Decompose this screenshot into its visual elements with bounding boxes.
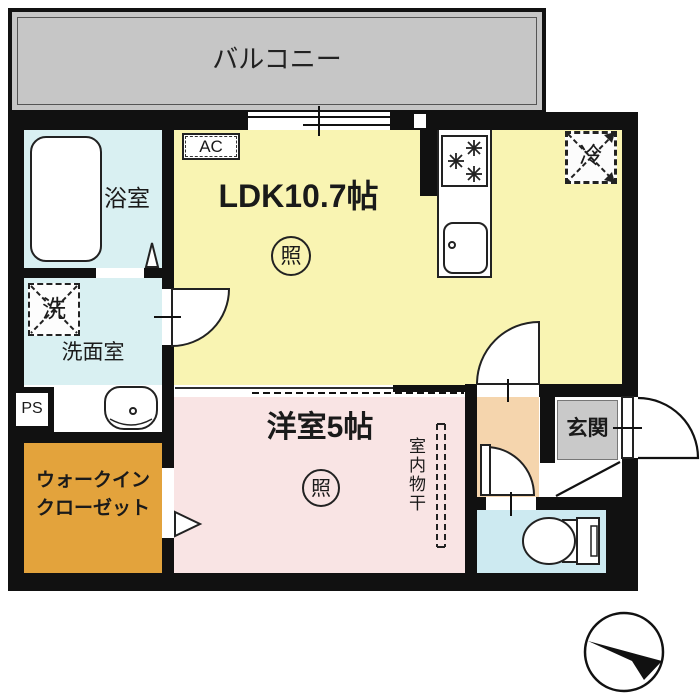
balcony-window-gap xyxy=(248,112,390,130)
door-arc-entry xyxy=(638,398,698,458)
bathroom-door-gap xyxy=(96,268,144,278)
fridge-symbol: 冷 xyxy=(565,142,617,168)
wall-toilet-right xyxy=(606,510,622,573)
wall-hall-top xyxy=(539,384,622,397)
stove xyxy=(441,135,488,187)
bathroom-label: 浴室 xyxy=(90,185,164,211)
hallway xyxy=(477,397,539,497)
ldk-label: LDK10.7帖 xyxy=(186,178,411,215)
wall-right xyxy=(622,112,638,591)
wic-door-gap xyxy=(162,468,174,538)
ldk-light-symbol: 照 xyxy=(271,236,311,276)
toilet-room xyxy=(477,510,606,573)
wall-hall-genkan xyxy=(540,397,555,463)
washroom-label: 洗面室 xyxy=(28,341,158,365)
ldk-room xyxy=(174,130,622,385)
genkan-label: 玄関 xyxy=(557,417,618,441)
wall-western-hall xyxy=(465,384,477,573)
western-light-symbol: 照 xyxy=(302,469,340,507)
partition-bar xyxy=(393,385,466,392)
floorplan: バルコニー 浴室 洗 洗面室 PS ウォークイン クローゼッ xyxy=(0,0,700,700)
ps-label: PS xyxy=(16,400,48,418)
wall-vanity-wic xyxy=(10,432,162,443)
compass-icon xyxy=(585,613,663,691)
balcony-label: バルコニー xyxy=(8,45,546,75)
toilet-door-gap xyxy=(486,497,536,510)
washer-symbol: 洗 xyxy=(28,296,80,324)
ac-label: AC xyxy=(182,137,240,157)
sink-faucet xyxy=(448,241,456,249)
washroom-door-gap xyxy=(162,289,174,345)
wic-label-line2: クローゼット xyxy=(24,498,162,520)
washbasin-faucet xyxy=(129,407,137,415)
entry-door-frame xyxy=(621,396,634,459)
ldk-door-gap xyxy=(477,384,539,397)
kitchen-stub-wall xyxy=(420,130,437,196)
wall-slot xyxy=(414,114,426,128)
wall-bottom xyxy=(8,573,638,591)
wall-left xyxy=(8,112,24,591)
indoor-drying-label: 室内物干 xyxy=(403,437,428,552)
wic-label-line1: ウォークイン xyxy=(24,470,162,492)
